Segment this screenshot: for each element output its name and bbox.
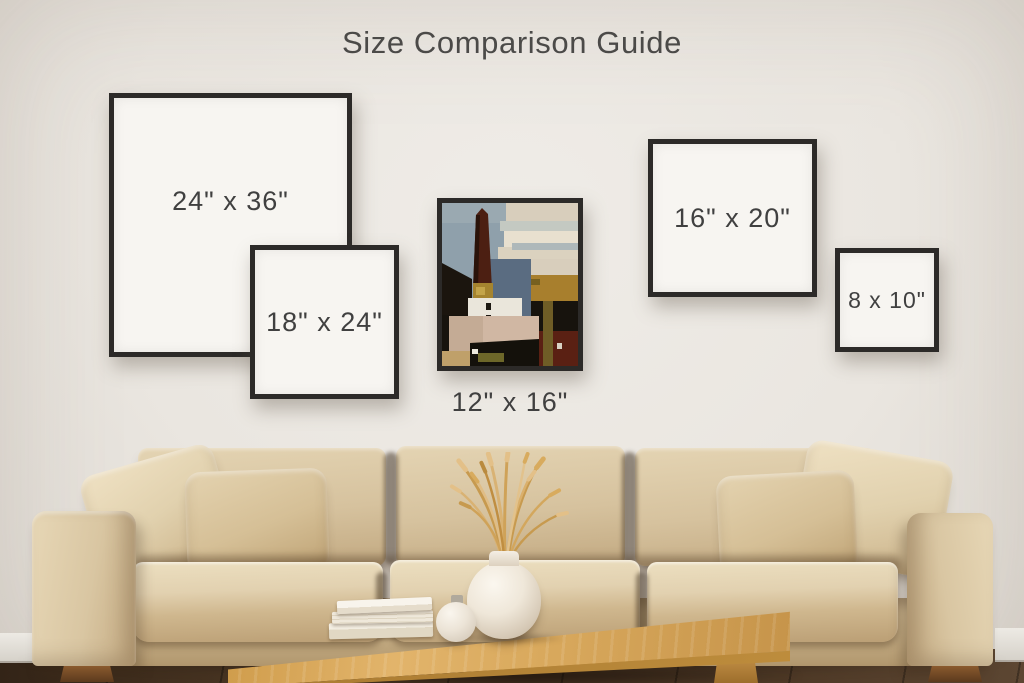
cushion-gap — [622, 452, 637, 564]
frame-12x16-label: 12" x 16" — [407, 387, 613, 418]
sofa-arm-left — [32, 511, 136, 666]
frame-8x10: 8 x 10" — [835, 248, 939, 352]
frame-12x16 — [437, 198, 583, 371]
frame-24x36-label: 24" x 36" — [172, 186, 289, 217]
large-round-vase — [467, 561, 541, 639]
small-round-vase — [436, 602, 476, 642]
sofa-foot-left — [60, 666, 114, 682]
frame-18x24-label: 18" x 24" — [266, 307, 383, 338]
page-title: Size Comparison Guide — [0, 25, 1024, 61]
seat-gap — [636, 572, 648, 634]
large-vase-neck — [489, 551, 519, 566]
sofa-foot-right — [928, 666, 982, 682]
abstract-painting — [442, 203, 578, 366]
frame-8x10-label: 8 x 10" — [848, 287, 926, 314]
frame-18x24: 18" x 24" — [250, 245, 399, 399]
sofa-arm-right — [907, 513, 993, 666]
living-room-scene: Size Comparison Guide 24" x 36" 16" x 20… — [0, 0, 1024, 683]
cushion-gap — [384, 452, 398, 564]
frame-16x20-label: 16" x 20" — [674, 203, 791, 234]
frame-16x20: 16" x 20" — [648, 139, 817, 297]
